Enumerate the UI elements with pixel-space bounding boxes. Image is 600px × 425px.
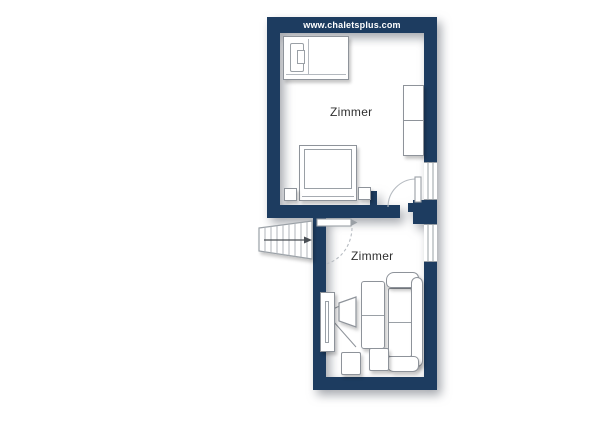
wall-right-lower	[424, 262, 437, 390]
watermark-text: www.chaletsplus.com	[267, 17, 437, 33]
wardrobe	[403, 85, 424, 156]
tv-screen-icon	[325, 301, 329, 343]
room-label-upper: Zimmer	[330, 105, 372, 119]
window-lower	[424, 224, 437, 262]
sofa-armrest-bottom	[386, 356, 419, 372]
wall-door-stub	[370, 191, 377, 205]
headboard-line	[302, 196, 354, 197]
single-bed	[283, 36, 349, 80]
wardrobe-shelf-line	[404, 120, 423, 121]
nightstand-left	[284, 188, 297, 201]
wall-bottom-lower-room	[313, 377, 437, 390]
wall-bottom-upper-room	[267, 205, 400, 218]
window-upper	[424, 162, 437, 200]
sofa-seat	[388, 288, 412, 357]
wall-door-nub	[408, 203, 414, 212]
sofa-cushion-line	[389, 322, 411, 323]
sofa-backrest	[411, 277, 423, 367]
mattress-line	[286, 74, 346, 75]
nightstand-right	[358, 187, 371, 200]
bed-divider-line	[308, 39, 309, 74]
stool-2	[369, 348, 389, 371]
double-bed	[299, 145, 357, 201]
floorplan: www.chaletsplus.com	[0, 0, 600, 425]
room-label-lower: Zimmer	[351, 249, 393, 263]
tv-sideboard	[320, 292, 335, 352]
pillow-notch-icon	[297, 50, 305, 64]
wall-left-upper	[267, 17, 280, 218]
wall-right-upper	[424, 17, 437, 162]
table	[361, 281, 385, 349]
wall-junction-block	[413, 200, 437, 224]
table-divider-line	[362, 315, 384, 316]
stool-1	[341, 352, 361, 375]
duvet	[304, 149, 352, 189]
